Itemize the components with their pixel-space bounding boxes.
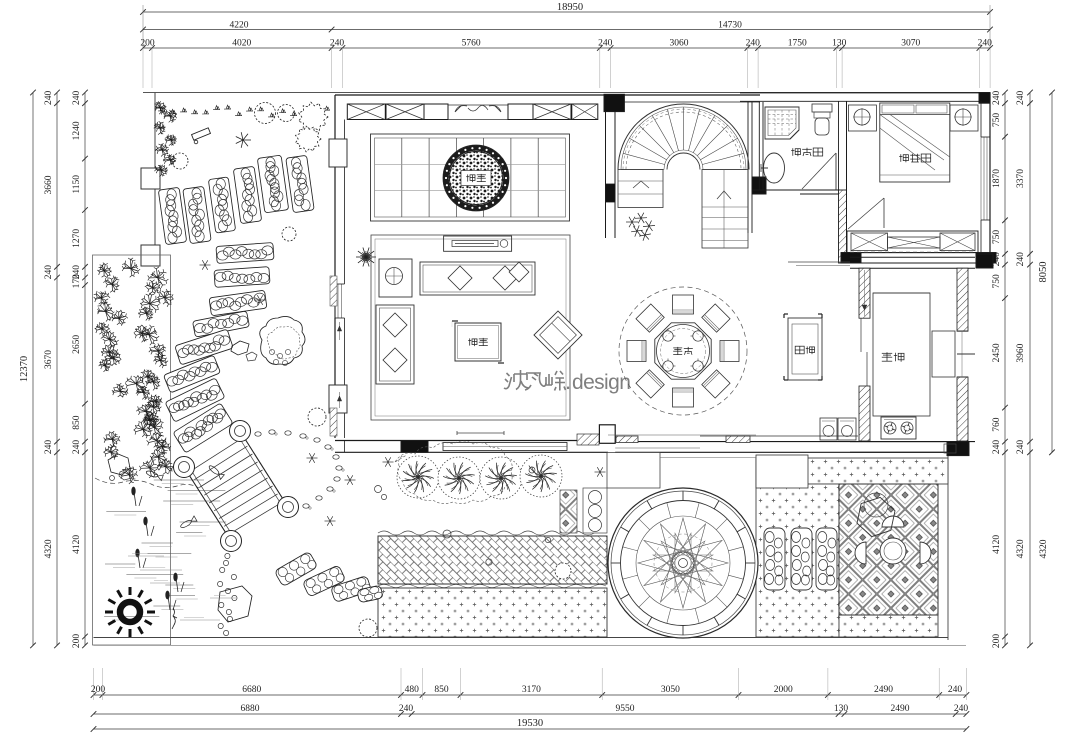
svg-text:240: 240 bbox=[72, 440, 82, 455]
svg-text:200: 200 bbox=[992, 634, 1002, 649]
svg-text:4320: 4320 bbox=[1039, 539, 1049, 558]
svg-text:1870: 1870 bbox=[992, 169, 1002, 188]
svg-text:200: 200 bbox=[72, 634, 82, 649]
svg-text:19530: 19530 bbox=[517, 718, 543, 729]
svg-text:2490: 2490 bbox=[874, 685, 893, 695]
svg-text:5760: 5760 bbox=[462, 39, 481, 49]
svg-text:2000: 2000 bbox=[774, 685, 793, 695]
svg-text:240: 240 bbox=[1016, 90, 1026, 105]
svg-text:3060: 3060 bbox=[670, 39, 689, 49]
svg-text:3170: 3170 bbox=[522, 685, 541, 695]
svg-text:3960: 3960 bbox=[1016, 343, 1026, 362]
svg-text:3370: 3370 bbox=[1016, 169, 1026, 188]
svg-text:2490: 2490 bbox=[891, 704, 910, 714]
svg-text:14730: 14730 bbox=[718, 21, 742, 31]
svg-text:4020: 4020 bbox=[232, 39, 251, 49]
svg-text:750: 750 bbox=[992, 113, 1002, 128]
svg-text:480: 480 bbox=[405, 685, 420, 695]
svg-text:12370: 12370 bbox=[19, 356, 30, 382]
svg-text:200: 200 bbox=[91, 685, 106, 695]
svg-text:130: 130 bbox=[834, 704, 849, 714]
svg-text:240: 240 bbox=[44, 440, 54, 455]
svg-text:4220: 4220 bbox=[230, 21, 249, 31]
svg-text:240: 240 bbox=[1016, 440, 1026, 455]
svg-text:760: 760 bbox=[992, 417, 1002, 432]
svg-text:9550: 9550 bbox=[616, 704, 635, 714]
svg-text:240: 240 bbox=[44, 90, 54, 105]
svg-text:240: 240 bbox=[948, 685, 963, 695]
svg-text:1240: 1240 bbox=[72, 121, 82, 140]
svg-text:2450: 2450 bbox=[992, 343, 1002, 362]
svg-text:3670: 3670 bbox=[44, 350, 54, 369]
svg-text:3070: 3070 bbox=[901, 39, 920, 49]
svg-text:130: 130 bbox=[832, 39, 847, 49]
svg-text:240: 240 bbox=[598, 39, 613, 49]
svg-text:240: 240 bbox=[330, 39, 345, 49]
svg-text:170: 170 bbox=[72, 274, 82, 289]
svg-text:6880: 6880 bbox=[241, 704, 260, 714]
svg-text:8050: 8050 bbox=[1038, 262, 1049, 283]
svg-text:18950: 18950 bbox=[557, 2, 583, 13]
svg-text:4320: 4320 bbox=[1016, 539, 1026, 558]
svg-text:750: 750 bbox=[992, 274, 1002, 289]
svg-text:850: 850 bbox=[434, 685, 449, 695]
svg-text:1150: 1150 bbox=[72, 175, 82, 194]
svg-text:1270: 1270 bbox=[72, 229, 82, 248]
svg-text:240: 240 bbox=[44, 265, 54, 280]
svg-text:240: 240 bbox=[746, 39, 761, 49]
svg-text:200: 200 bbox=[140, 39, 155, 49]
svg-text:240: 240 bbox=[1016, 252, 1026, 267]
svg-text:240: 240 bbox=[978, 39, 993, 49]
svg-text:.: . bbox=[565, 369, 571, 394]
svg-text:3050: 3050 bbox=[661, 685, 680, 695]
svg-text:3660: 3660 bbox=[44, 175, 54, 194]
svg-text:240: 240 bbox=[992, 90, 1002, 105]
svg-text:850: 850 bbox=[72, 415, 82, 430]
svg-text:240: 240 bbox=[954, 704, 969, 714]
svg-text:240: 240 bbox=[992, 440, 1002, 455]
svg-text:2650: 2650 bbox=[72, 335, 82, 354]
svg-text:240: 240 bbox=[399, 704, 414, 714]
svg-text:1750: 1750 bbox=[788, 39, 807, 49]
svg-text:6680: 6680 bbox=[242, 685, 261, 695]
svg-text:design: design bbox=[572, 371, 630, 394]
svg-text:4320: 4320 bbox=[44, 539, 54, 558]
svg-text:4120: 4120 bbox=[72, 535, 82, 554]
svg-text:240: 240 bbox=[72, 90, 82, 105]
svg-text:4120: 4120 bbox=[992, 535, 1002, 554]
svg-text:750: 750 bbox=[992, 230, 1002, 245]
